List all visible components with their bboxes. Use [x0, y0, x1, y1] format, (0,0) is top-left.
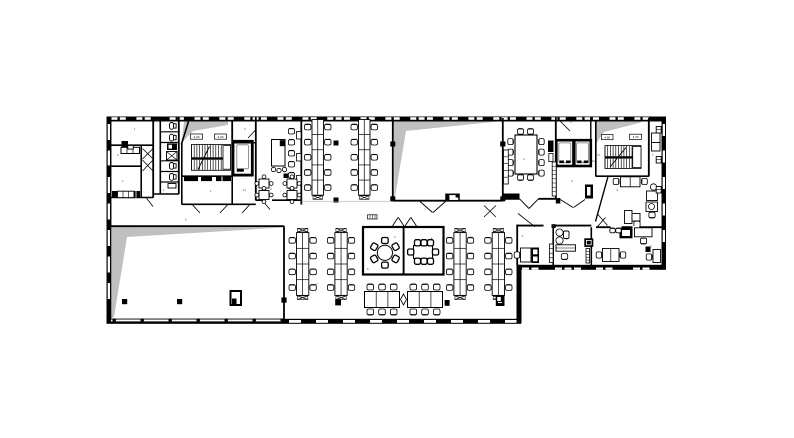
svg-text:Π: Π: [598, 153, 600, 157]
svg-text:4.20: 4.20: [194, 135, 200, 139]
svg-text:11: 11: [592, 159, 595, 163]
svg-text:A: A: [431, 237, 433, 241]
svg-text:4.60: 4.60: [604, 136, 610, 140]
svg-text:11: 11: [243, 188, 246, 192]
svg-text:4.70: 4.70: [633, 135, 639, 139]
svg-text:4.20: 4.20: [218, 135, 224, 139]
